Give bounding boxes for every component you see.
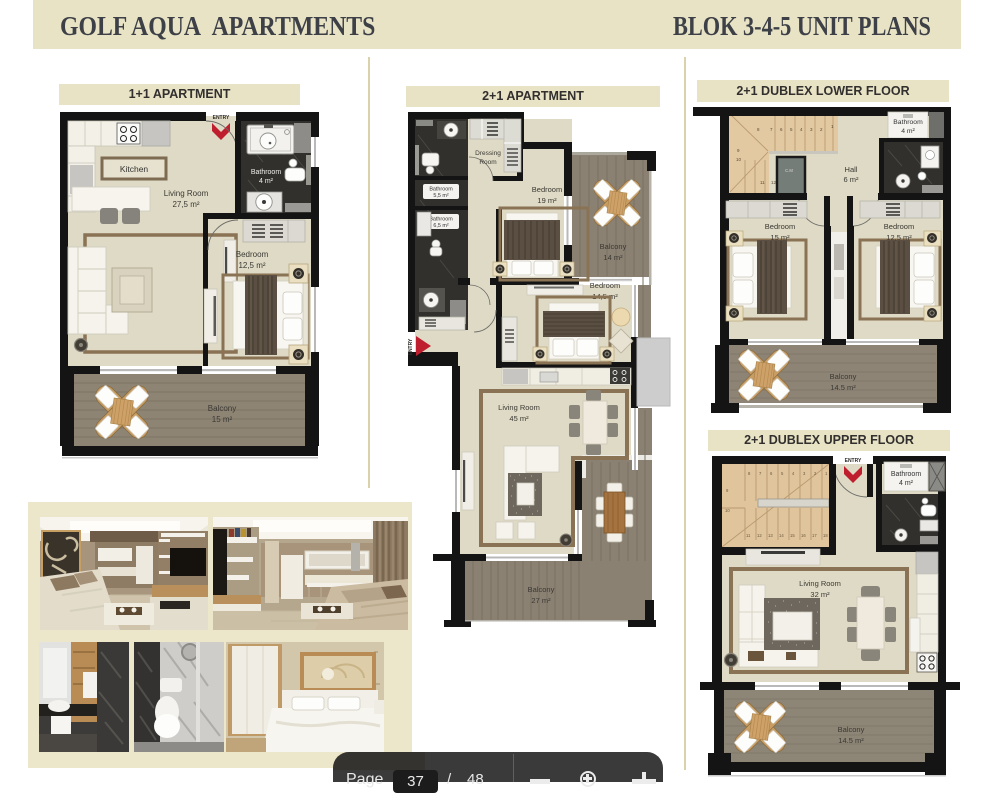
svg-text:ENTRY: ENTRY — [845, 458, 862, 464]
svg-text:5,5 m²: 5,5 m² — [433, 193, 448, 199]
svg-text:10: 10 — [736, 157, 742, 162]
svg-text:12: 12 — [771, 180, 777, 185]
svg-text:13: 13 — [768, 533, 773, 538]
svg-text:Bathroom: Bathroom — [429, 217, 453, 223]
svg-text:16: 16 — [801, 533, 806, 538]
svg-text:Balcony: Balcony — [528, 585, 555, 594]
svg-text:11: 11 — [760, 180, 765, 185]
svg-text:Balcony: Balcony — [208, 404, 236, 413]
svg-text:Bathroom: Bathroom — [251, 169, 282, 176]
svg-text:Bedroom: Bedroom — [884, 222, 914, 231]
svg-text:15: 15 — [790, 533, 795, 538]
svg-text:15 m²: 15 m² — [212, 415, 233, 424]
svg-text:Balcony: Balcony — [830, 372, 857, 381]
svg-text:Living Room: Living Room — [164, 189, 209, 198]
svg-text:Bedroom: Bedroom — [765, 222, 795, 231]
svg-text:14 m²: 14 m² — [603, 253, 623, 262]
svg-text:11: 11 — [746, 533, 751, 538]
svg-text:12: 12 — [757, 533, 762, 538]
svg-text:6,5 m²: 6,5 m² — [433, 223, 448, 229]
svg-text:32 m²: 32 m² — [810, 590, 830, 599]
svg-text:45 m²: 45 m² — [509, 414, 529, 423]
svg-text:Bathroom: Bathroom — [893, 119, 923, 126]
svg-text:6 m²: 6 m² — [844, 175, 860, 184]
svg-text:10: 10 — [725, 508, 730, 513]
svg-text:Room: Room — [479, 159, 496, 166]
svg-text:19 m²: 19 m² — [537, 196, 557, 205]
svg-text:4 m²: 4 m² — [259, 178, 274, 185]
svg-text:Living Room: Living Room — [498, 403, 540, 412]
svg-text:Living Room: Living Room — [799, 579, 841, 588]
svg-text:18: 18 — [823, 533, 828, 538]
svg-text:ENTRY: ENTRY — [408, 338, 414, 355]
svg-text:14.5 m²: 14.5 m² — [830, 383, 856, 392]
svg-text:14.5 m²: 14.5 m² — [838, 736, 864, 745]
svg-text:C.M: C.M — [785, 168, 793, 173]
svg-text:14: 14 — [779, 533, 784, 538]
svg-text:12,5 m²: 12,5 m² — [238, 261, 265, 270]
svg-text:4 m²: 4 m² — [901, 128, 915, 135]
svg-text:Hall: Hall — [845, 165, 858, 174]
svg-text:Balcony: Balcony — [838, 725, 865, 734]
svg-text:Balcony: Balcony — [600, 242, 627, 251]
svg-text:17: 17 — [812, 533, 817, 538]
svg-text:4 m²: 4 m² — [899, 480, 914, 487]
svg-text:Dressing: Dressing — [475, 150, 501, 157]
svg-text:15 m²: 15 m² — [770, 233, 790, 242]
svg-text:27,5 m²: 27,5 m² — [172, 200, 199, 209]
svg-text:Bedroom: Bedroom — [532, 185, 562, 194]
svg-text:27 m²: 27 m² — [531, 596, 551, 605]
svg-text:ENTRY: ENTRY — [213, 115, 230, 121]
svg-text:Kitchen: Kitchen — [120, 164, 149, 174]
svg-text:Bedroom: Bedroom — [590, 281, 620, 290]
svg-text:Bedroom: Bedroom — [236, 250, 269, 259]
svg-text:12,5 m²: 12,5 m² — [886, 233, 912, 242]
svg-text:Bathroom: Bathroom — [429, 187, 453, 193]
svg-text:Bathroom: Bathroom — [891, 471, 922, 478]
